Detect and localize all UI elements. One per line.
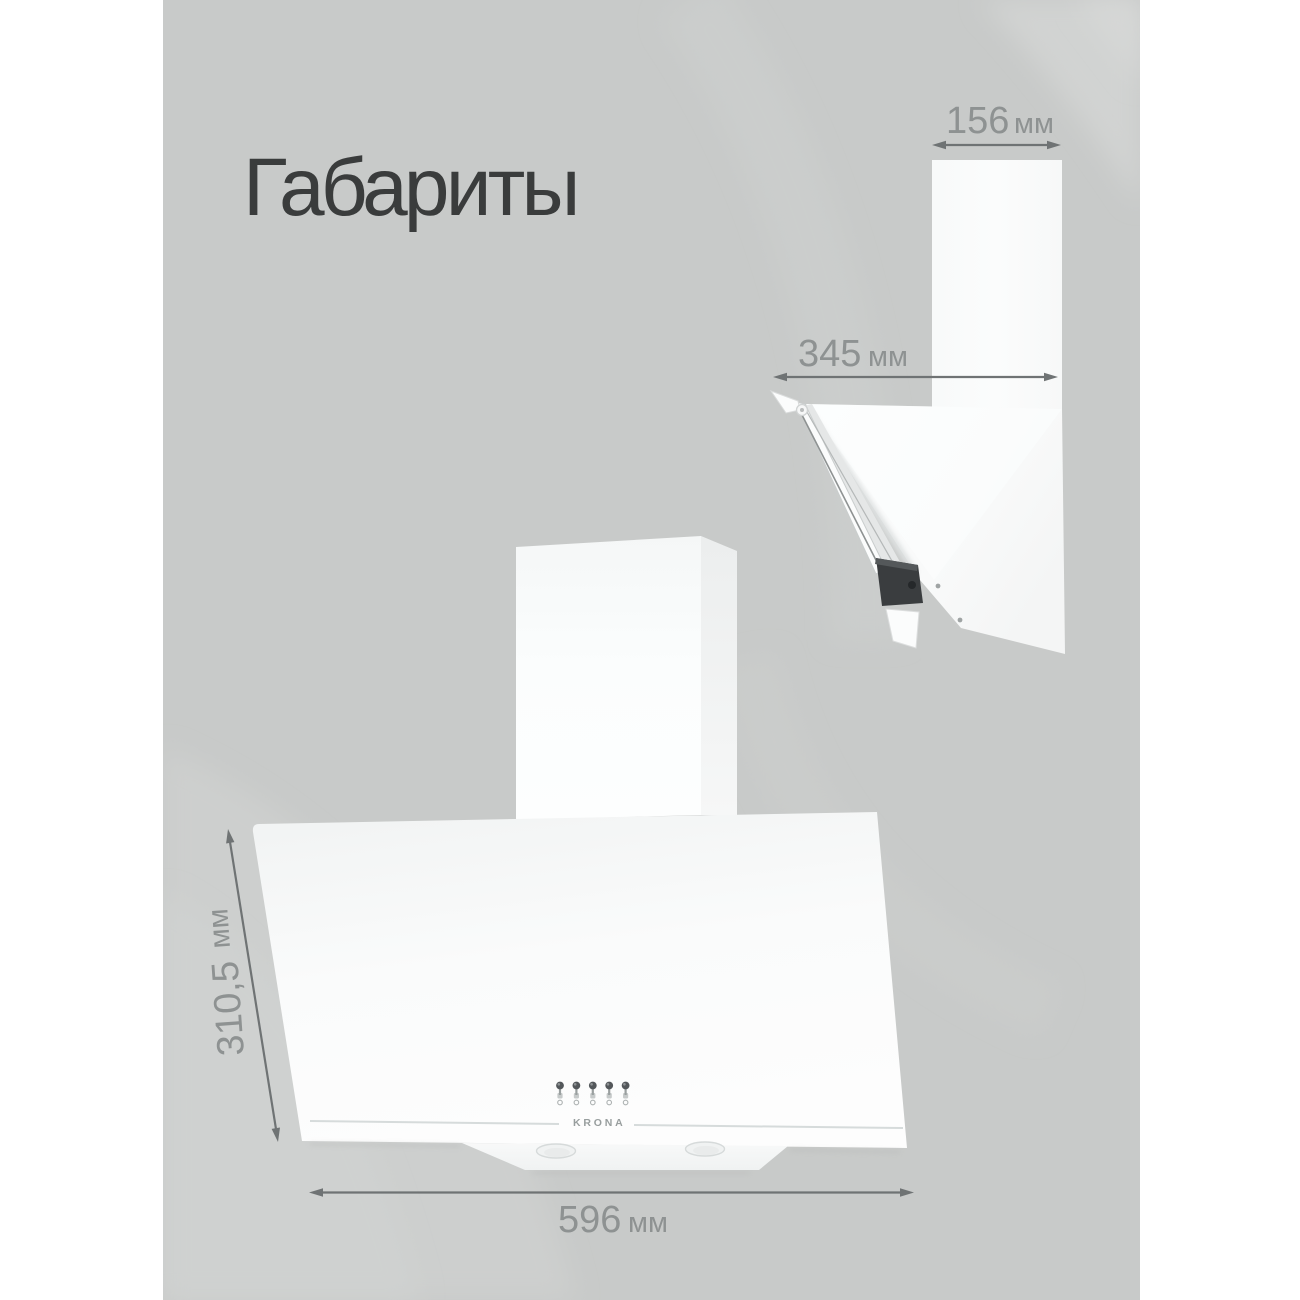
svg-text:156: 156 [946, 100, 1009, 142]
svg-text:Габариты: Габариты [243, 142, 577, 233]
svg-text:мм: мм [1014, 108, 1054, 140]
svg-text:345: 345 [798, 333, 861, 375]
svg-text:мм: мм [202, 907, 237, 949]
svg-text:мм: мм [628, 1207, 668, 1239]
svg-text:596: 596 [558, 1199, 621, 1241]
svg-text:KRONA: KRONA [573, 1117, 626, 1129]
svg-text:мм: мм [868, 341, 908, 373]
svg-text:310,5: 310,5 [204, 960, 253, 1058]
